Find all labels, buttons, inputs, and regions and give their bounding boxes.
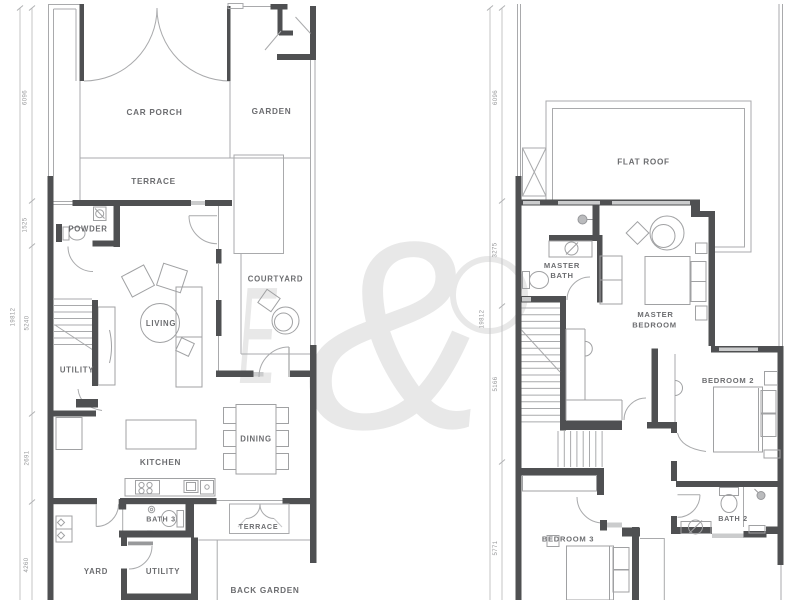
svg-text:2691: 2691 xyxy=(25,450,31,465)
svg-text:6096: 6096 xyxy=(493,90,499,105)
svg-text:6096: 6096 xyxy=(23,90,29,105)
svg-text:BATH 2: BATH 2 xyxy=(718,514,748,523)
svg-text:TERRACE: TERRACE xyxy=(239,522,279,531)
svg-text:19812: 19812 xyxy=(480,309,486,328)
svg-text:BEDROOM 2: BEDROOM 2 xyxy=(702,376,754,385)
svg-text:BATH: BATH xyxy=(550,271,573,280)
svg-text:BEDROOM: BEDROOM xyxy=(632,321,677,330)
svg-text:MASTER: MASTER xyxy=(544,261,580,270)
svg-text:UTILITY: UTILITY xyxy=(146,567,180,576)
svg-text:BACK GARDEN: BACK GARDEN xyxy=(230,586,299,595)
svg-text:LIVING: LIVING xyxy=(146,319,176,328)
svg-text:4260: 4260 xyxy=(24,557,30,572)
svg-text:&: & xyxy=(305,185,485,486)
svg-text:5771: 5771 xyxy=(493,540,499,555)
svg-text:BATH 3: BATH 3 xyxy=(146,515,176,524)
svg-text:KITCHEN: KITCHEN xyxy=(140,458,181,467)
svg-text:19812: 19812 xyxy=(11,307,17,326)
svg-text:5240: 5240 xyxy=(25,315,31,330)
svg-text:POWDER: POWDER xyxy=(68,225,107,234)
svg-text:CAR PORCH: CAR PORCH xyxy=(127,108,183,117)
svg-text:FLAT ROOF: FLAT ROOF xyxy=(617,158,670,167)
svg-text:DINING: DINING xyxy=(240,435,272,444)
svg-text:YARD: YARD xyxy=(84,567,108,576)
svg-text:1525: 1525 xyxy=(23,217,29,232)
svg-text:5166: 5166 xyxy=(493,376,499,391)
svg-text:MASTER: MASTER xyxy=(637,310,673,319)
svg-text:COURTYARD: COURTYARD xyxy=(248,275,303,284)
svg-text:GARDEN: GARDEN xyxy=(252,107,292,116)
svg-text:TERRACE: TERRACE xyxy=(131,177,175,186)
svg-text:UTILITY: UTILITY xyxy=(60,366,94,375)
svg-text:3275: 3275 xyxy=(493,242,499,257)
